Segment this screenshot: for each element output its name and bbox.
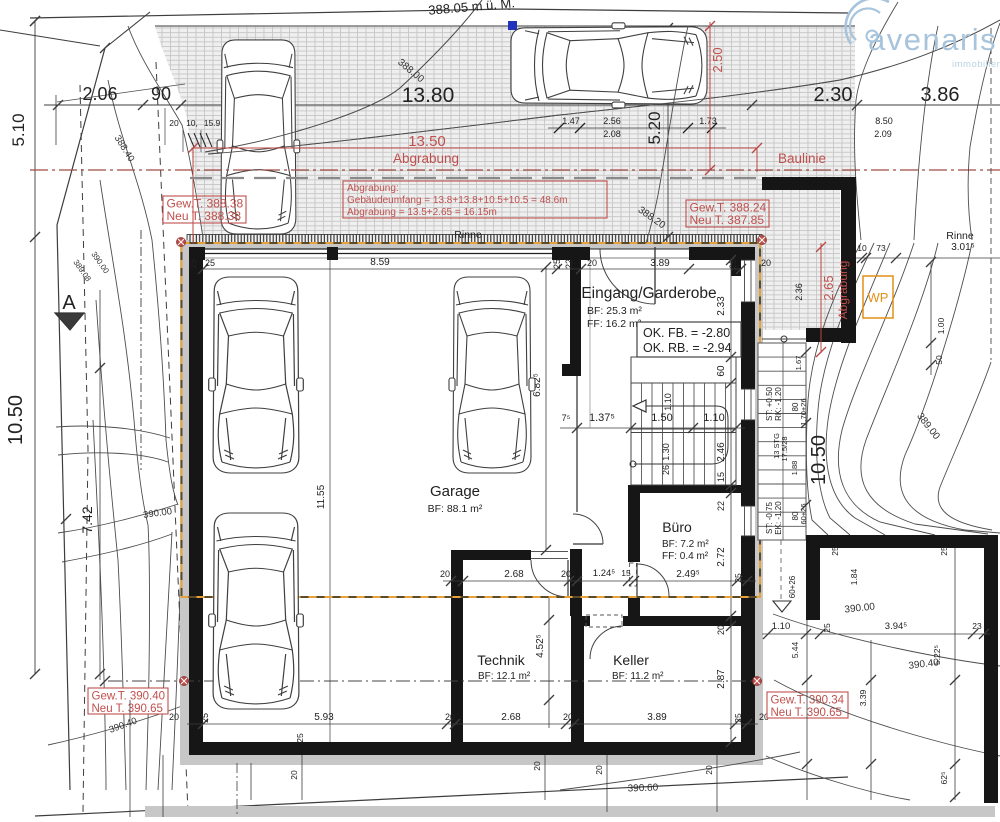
svg-text:2.87: 2.87 <box>716 669 727 689</box>
svg-text:5.22⁵: 5.22⁵ <box>932 645 942 665</box>
svg-text:26: 26 <box>661 465 671 475</box>
svg-text:2.49⁵: 2.49⁵ <box>676 569 700 580</box>
svg-text:20: 20 <box>704 765 714 775</box>
svg-text:25: 25 <box>939 546 949 556</box>
svg-text:10,: 10, <box>186 118 198 128</box>
svg-text:2.30: 2.30 <box>814 84 853 106</box>
svg-text:20: 20 <box>716 625 726 635</box>
svg-text:22: 22 <box>716 501 726 511</box>
svg-text:20: 20 <box>169 118 179 128</box>
svg-text:20: 20 <box>587 258 597 268</box>
svg-text:388.05 m ü. M.: 388.05 m ü. M. <box>428 0 516 18</box>
svg-text:1.47: 1.47 <box>562 116 580 126</box>
svg-text:13.50: 13.50 <box>408 133 446 150</box>
svg-text:Abgrabung: Abgrabung <box>836 261 850 320</box>
svg-text:22: 22 <box>564 259 574 269</box>
svg-text:23: 23 <box>972 621 982 631</box>
svg-text:Abgrabung: Abgrabung <box>393 151 459 166</box>
svg-text:390.40: 390.40 <box>108 716 139 736</box>
svg-text:Neu T. 390.65: Neu T. 390.65 <box>92 703 163 715</box>
svg-text:1.67: 1.67 <box>794 356 803 371</box>
svg-text:Rinne: Rinne <box>454 229 482 241</box>
svg-text:FF: 0.4 m²: FF: 0.4 m² <box>662 551 709 562</box>
svg-text:25: 25 <box>205 258 215 268</box>
svg-text:20: 20 <box>563 712 573 722</box>
svg-text:2.33: 2.33 <box>716 296 727 316</box>
svg-text:10: 10 <box>857 243 867 253</box>
svg-text:90: 90 <box>151 84 171 104</box>
svg-text:4.52⁵: 4.52⁵ <box>535 634 546 658</box>
svg-text:2.72: 2.72 <box>716 547 727 567</box>
svg-text:1.10: 1.10 <box>663 393 673 411</box>
svg-text:8.59: 8.59 <box>370 257 390 268</box>
svg-text:60+26: 60+26 <box>788 575 797 598</box>
svg-text:Gebäudeumfang = 13.8+13.8+10.5: Gebäudeumfang = 13.8+13.8+10.5+10.5 = 48… <box>347 195 567 206</box>
svg-text:1.00: 1.00 <box>936 317 946 334</box>
svg-text:62⁵: 62⁵ <box>939 772 949 785</box>
svg-text:3.89: 3.89 <box>650 258 670 269</box>
svg-text:15: 15 <box>716 472 726 482</box>
svg-text:60: 60 <box>716 365 727 377</box>
svg-text:390.60: 390.60 <box>627 782 658 794</box>
svg-text:25: 25 <box>552 259 562 269</box>
svg-text:25: 25 <box>200 713 210 723</box>
svg-text:BF: 12.1 m²: BF: 12.1 m² <box>478 671 531 682</box>
svg-text:ST: +0.50: ST: +0.50 <box>765 386 774 421</box>
svg-text:1.37⁵: 1.37⁵ <box>589 412 615 424</box>
svg-text:20: 20 <box>169 712 179 722</box>
svg-text:3.01⁵: 3.01⁵ <box>951 242 975 253</box>
svg-text:20: 20 <box>440 569 450 579</box>
svg-text:Neu T. 387.85: Neu T. 387.85 <box>690 213 765 227</box>
svg-text:OK. FB. = -2.80: OK. FB. = -2.80 <box>643 326 730 340</box>
svg-text:Abgrabung = 13.5+2.65 = 16.15m: Abgrabung = 13.5+2.65 = 16.15m <box>347 207 497 218</box>
svg-text:25: 25 <box>830 546 840 556</box>
svg-text:1.73: 1.73 <box>699 116 717 126</box>
svg-text:17.5/28: 17.5/28 <box>780 436 789 461</box>
svg-text:10.50: 10.50 <box>808 435 830 485</box>
svg-text:RK: -1.20: RK: -1.20 <box>774 387 783 421</box>
svg-text:OK. RB. = -2.94: OK. RB. = -2.94 <box>643 341 732 355</box>
svg-text:73: 73 <box>876 243 886 253</box>
svg-text:20: 20 <box>594 765 604 775</box>
svg-text:25: 25 <box>295 733 305 743</box>
svg-text:Abgrabung:: Abgrabung: <box>347 183 399 194</box>
svg-text:Garage: Garage <box>430 483 480 500</box>
svg-text:5.44: 5.44 <box>790 641 800 658</box>
svg-text:BF: 25.3 m²: BF: 25.3 m² <box>587 305 642 317</box>
svg-text:7⁵: 7⁵ <box>562 413 571 423</box>
svg-text:immobilien: immobilien <box>952 59 1000 70</box>
svg-text:20: 20 <box>532 761 542 771</box>
svg-text:BF: 7.2 m²: BF: 7.2 m² <box>662 539 709 550</box>
svg-text:A: A <box>62 292 76 314</box>
svg-text:25: 25 <box>822 623 832 633</box>
svg-text:2.46: 2.46 <box>716 442 727 462</box>
svg-text:20: 20 <box>761 258 771 268</box>
svg-text:2.06: 2.06 <box>82 84 117 104</box>
svg-text:3.94⁵: 3.94⁵ <box>885 621 907 632</box>
svg-text:389.08: 389.08 <box>71 258 93 284</box>
svg-text:ST: -0.75: ST: -0.75 <box>765 501 774 534</box>
svg-text:Baulinie: Baulinie <box>778 151 826 166</box>
svg-text:avenaris: avenaris <box>868 22 997 57</box>
svg-text:1.88: 1.88 <box>790 461 799 476</box>
svg-text:1.10: 1.10 <box>772 621 791 632</box>
svg-text:25: 25 <box>733 573 743 583</box>
svg-text:Büro: Büro <box>662 519 692 535</box>
svg-text:2.65: 2.65 <box>821 275 836 300</box>
svg-text:FF: 16.2 m²: FF: 16.2 m² <box>587 318 642 330</box>
svg-text:Rinne: Rinne <box>946 230 974 242</box>
svg-text:11.55: 11.55 <box>316 484 327 509</box>
svg-text:389.00: 389.00 <box>914 411 942 442</box>
svg-text:5.93: 5.93 <box>314 712 334 723</box>
svg-text:25: 25 <box>733 713 743 723</box>
svg-text:EK: -1.20: EK: -1.20 <box>774 501 783 535</box>
svg-text:Keller: Keller <box>613 652 649 668</box>
svg-text:1.50: 1.50 <box>651 412 672 424</box>
svg-text:1.10: 1.10 <box>703 412 724 424</box>
svg-text:20: 20 <box>561 569 571 579</box>
svg-text:8.50: 8.50 <box>875 116 893 126</box>
svg-text:Gew.T. 390.40: Gew.T. 390.40 <box>92 691 166 703</box>
svg-text:25: 25 <box>728 259 738 269</box>
svg-text:2.08: 2.08 <box>603 129 621 139</box>
svg-text:2.68: 2.68 <box>504 569 524 580</box>
svg-text:390.00: 390.00 <box>142 506 172 521</box>
svg-text:15.9: 15.9 <box>204 118 221 128</box>
svg-text:5.10: 5.10 <box>9 113 28 146</box>
svg-text:15: 15 <box>621 568 631 578</box>
svg-text:390.00: 390.00 <box>89 250 111 276</box>
svg-text:2.56: 2.56 <box>603 116 621 126</box>
svg-text:Neu T. 390.65: Neu T. 390.65 <box>771 707 842 719</box>
svg-text:25: 25 <box>188 259 198 269</box>
svg-text:1.84: 1.84 <box>849 568 859 585</box>
svg-text:Eingang/Garderobe: Eingang/Garderobe <box>581 285 716 302</box>
svg-text:Technik: Technik <box>477 652 525 668</box>
svg-text:1.30: 1.30 <box>661 443 671 461</box>
svg-text:3.89: 3.89 <box>647 712 667 723</box>
svg-text:2.50: 2.50 <box>710 47 725 72</box>
svg-text:BF: 88.1 m²: BF: 88.1 m² <box>428 503 483 515</box>
svg-text:388.40: 388.40 <box>112 133 137 163</box>
svg-text:2.36: 2.36 <box>794 283 804 301</box>
svg-text:20: 20 <box>445 712 455 722</box>
svg-text:13.80: 13.80 <box>402 84 455 107</box>
svg-text:2.09: 2.09 <box>874 129 892 139</box>
svg-text:7.42: 7.42 <box>79 506 95 533</box>
svg-text:50: 50 <box>934 355 944 365</box>
svg-text:390.00: 390.00 <box>844 601 876 615</box>
svg-text:WP: WP <box>868 290 889 305</box>
svg-text:20: 20 <box>289 770 299 780</box>
svg-text:2.68: 2.68 <box>501 712 521 723</box>
svg-text:10.50: 10.50 <box>5 395 27 445</box>
svg-text:Neu T. 388.38: Neu T. 388.38 <box>167 209 242 223</box>
svg-text:1.24⁵: 1.24⁵ <box>593 568 615 579</box>
svg-text:3.39: 3.39 <box>858 689 868 706</box>
svg-text:BF: 11.2 m²: BF: 11.2 m² <box>612 671 664 682</box>
